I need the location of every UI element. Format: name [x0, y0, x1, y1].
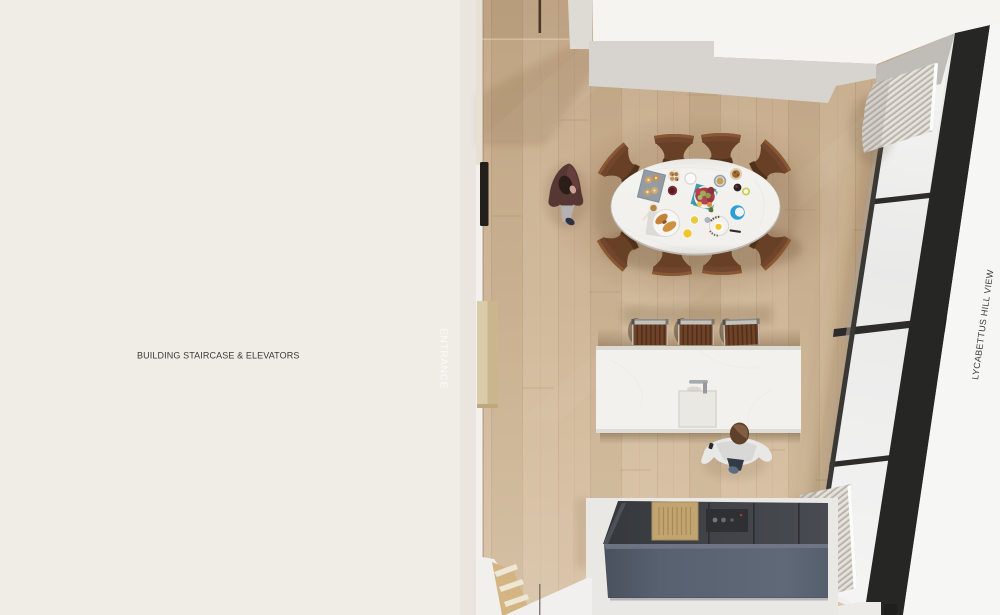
svg-text:ENTRANCE: ENTRANCE [438, 328, 450, 389]
svg-text:BUILDING STAIRCASE & ELEVATORS: BUILDING STAIRCASE & ELEVATORS [137, 351, 299, 361]
